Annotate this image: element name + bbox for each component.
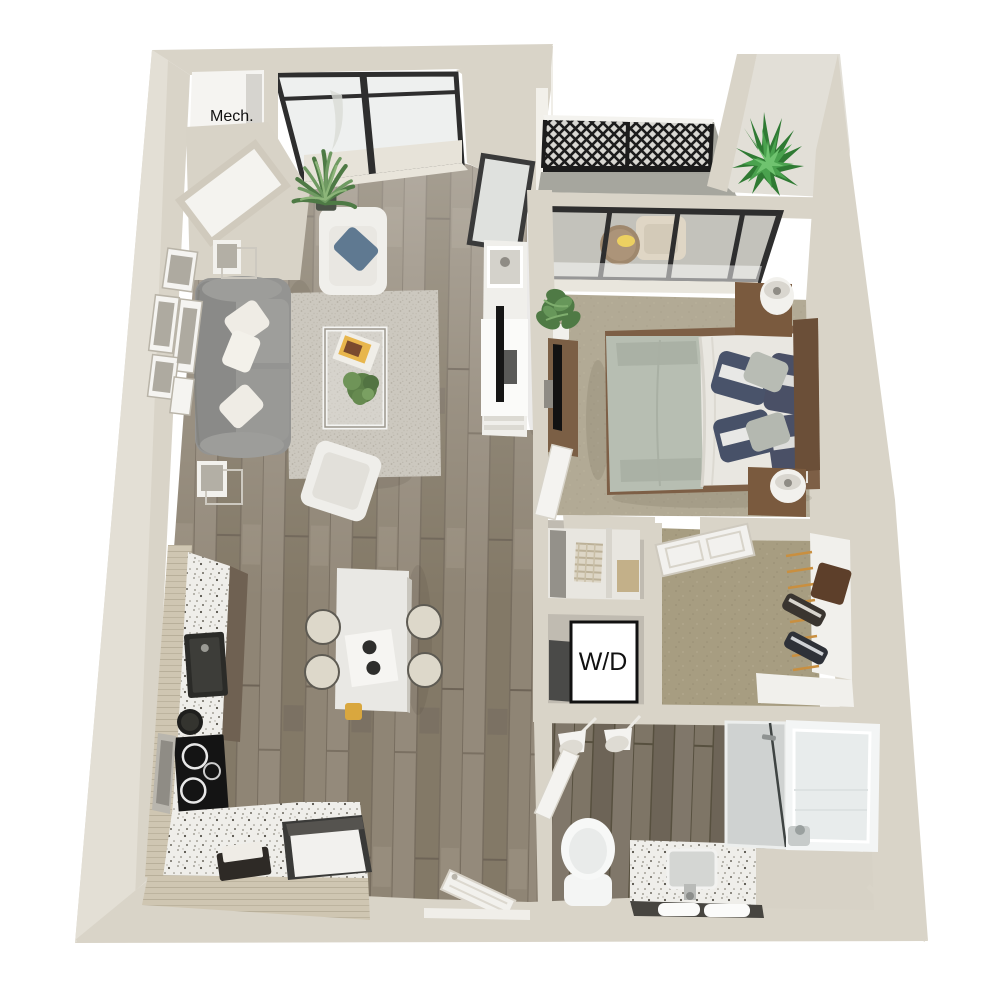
svg-text:W/D: W/D [579, 648, 628, 676]
svg-text:Mech.: Mech. [210, 108, 254, 125]
